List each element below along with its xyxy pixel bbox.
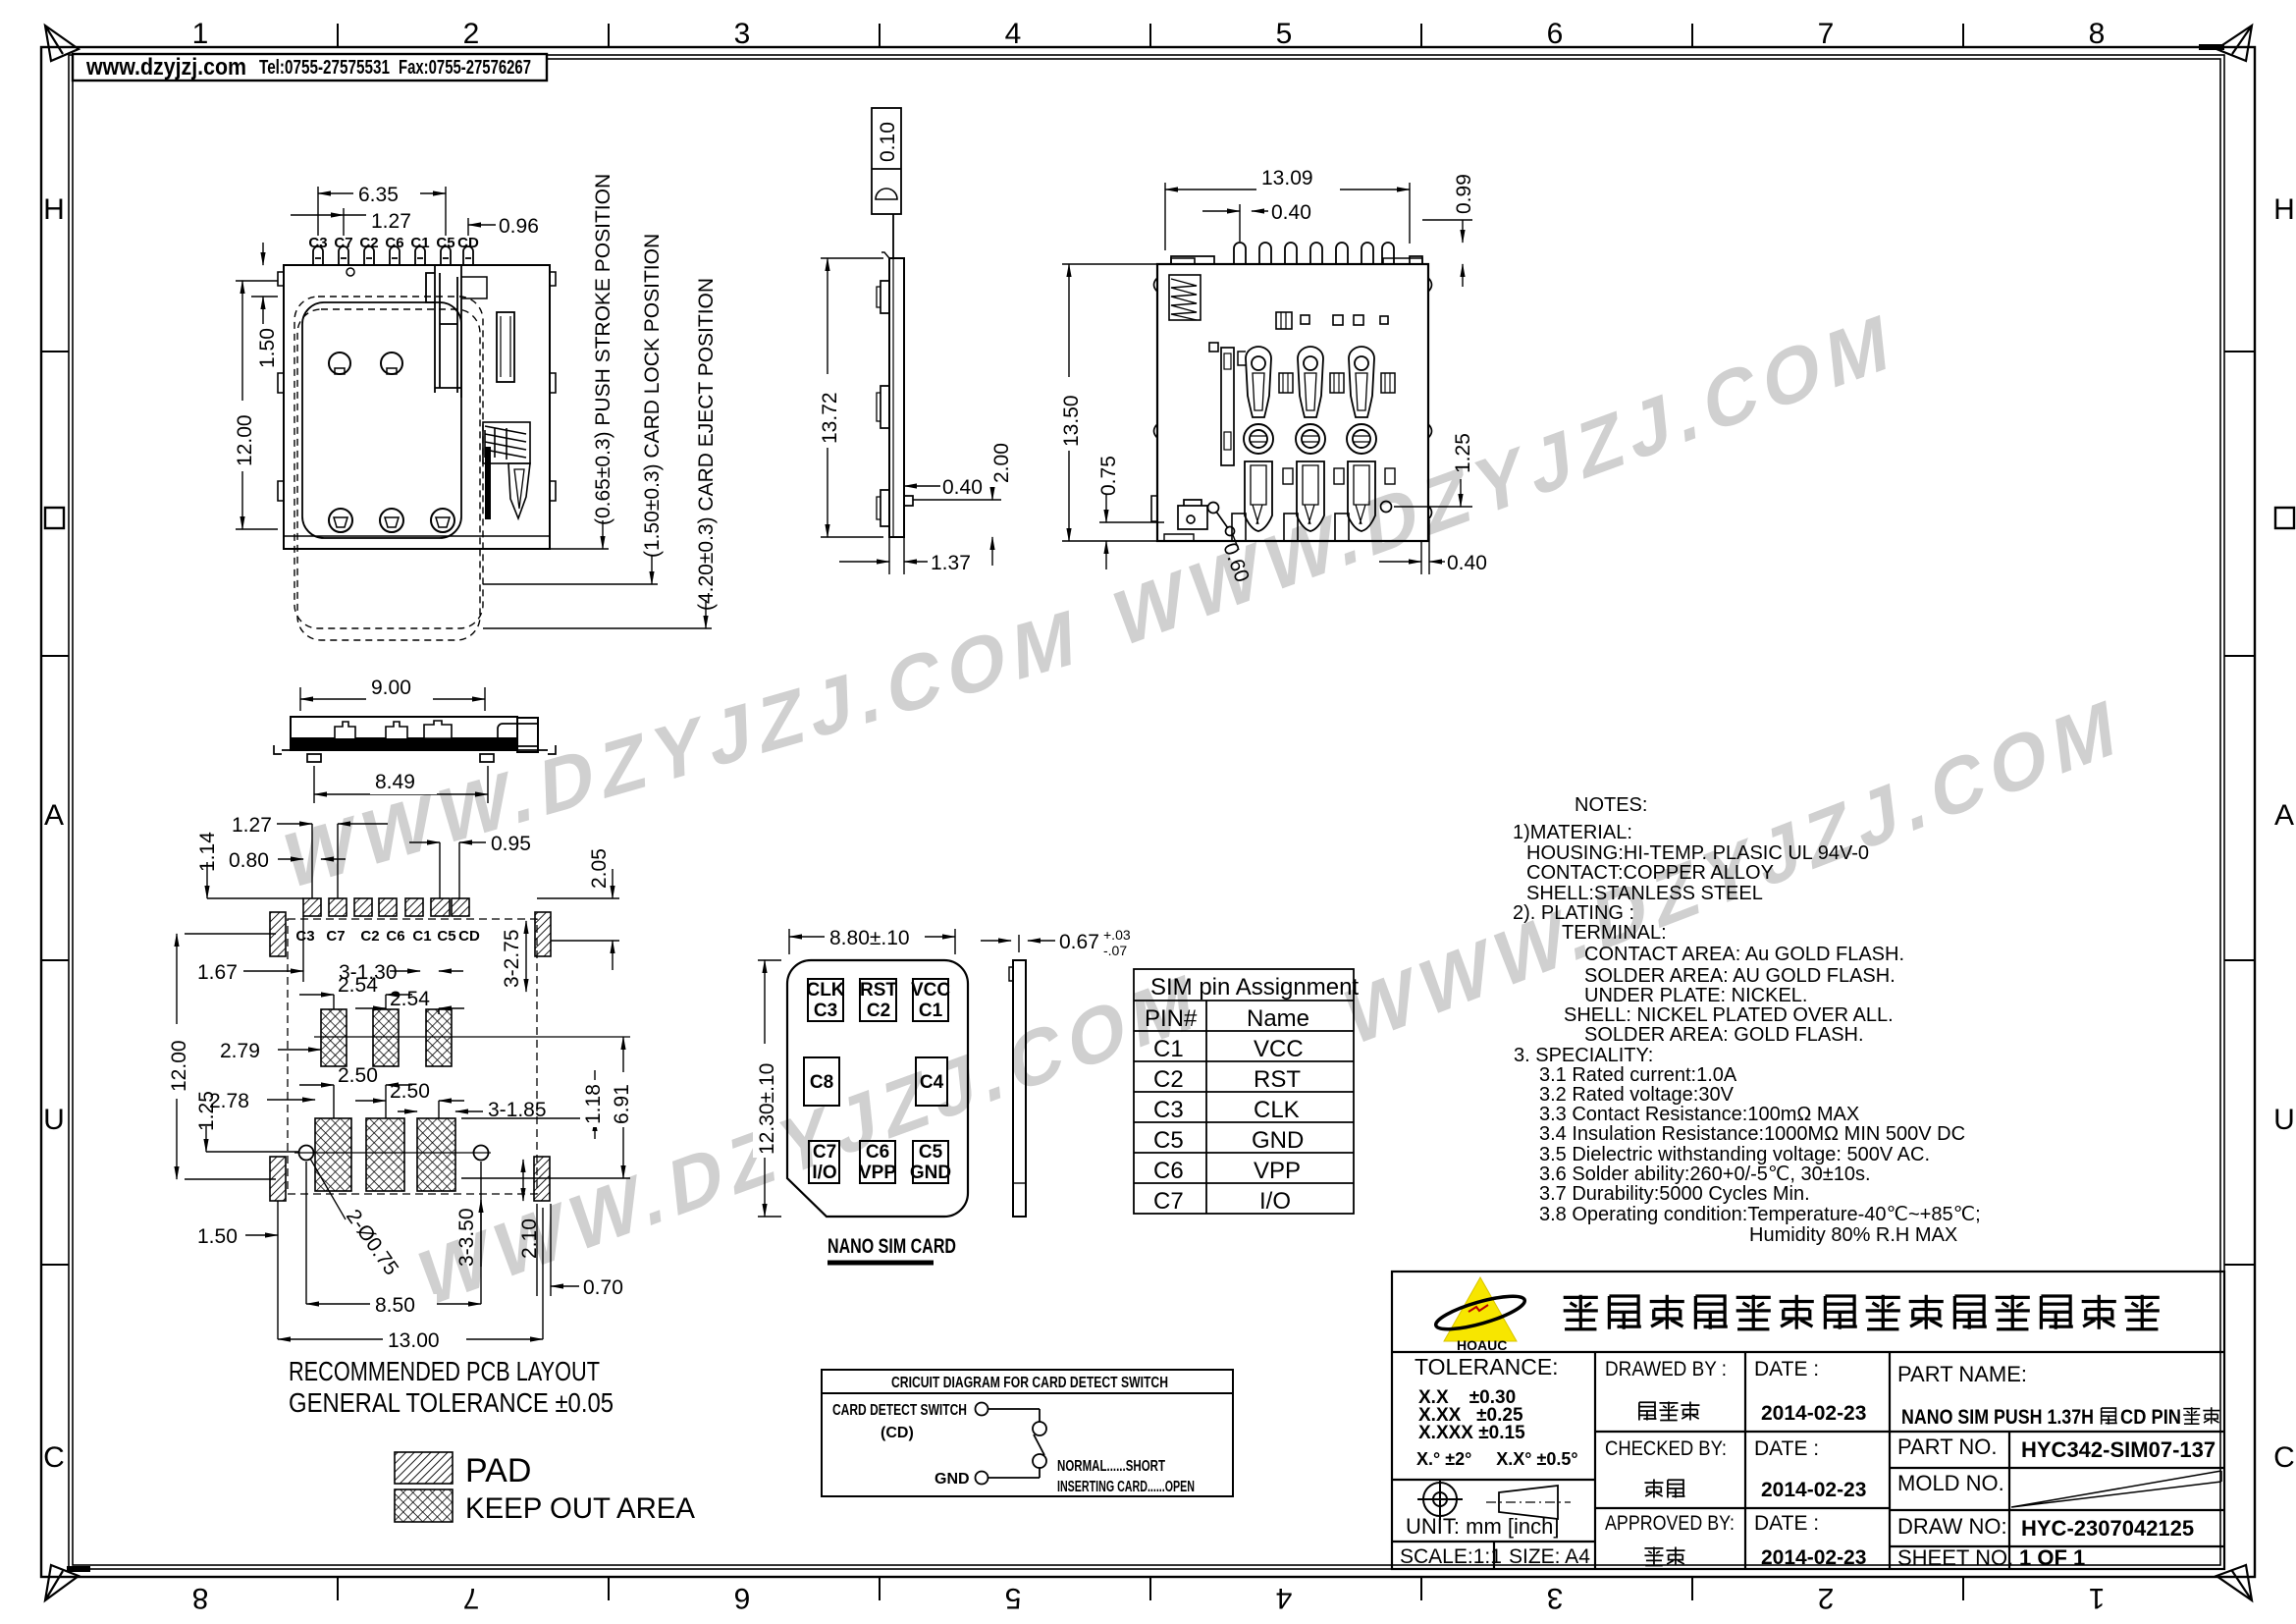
svg-text:GENERAL TOLERANCE ±0.05: GENERAL TOLERANCE ±0.05: [289, 1387, 614, 1418]
svg-text:2.79: 2.79: [220, 1040, 260, 1062]
svg-text:3.7 Durability:5000 Cycles: 3.7 Durability:5000 Cycles Min.: [1539, 1183, 1810, 1205]
svg-text:0.40: 0.40: [1271, 201, 1311, 224]
svg-text:CONTACT:COPPER ALLOY: CONTACT:COPPER ALLOY: [1526, 862, 1774, 884]
svg-text:H: H: [2273, 193, 2295, 226]
svg-text:9.00: 9.00: [371, 677, 411, 699]
svg-text:PART NO.: PART NO.: [1897, 1435, 1997, 1459]
svg-text:C6: C6: [386, 928, 404, 945]
svg-text:6.91: 6.91: [611, 1084, 633, 1124]
svg-text:NANO SIM CARD: NANO SIM CARD: [828, 1235, 956, 1258]
svg-text:HYC342-SIM07-137: HYC342-SIM07-137: [2021, 1437, 2216, 1462]
svg-text:HYC-2307042125: HYC-2307042125: [2021, 1516, 2194, 1541]
svg-text:C: C: [43, 1441, 65, 1474]
svg-text:INSERTING CARD......OPEN: INSERTING CARD......OPEN: [1057, 1479, 1195, 1495]
svg-text:CHECKED BY:: CHECKED BY:: [1605, 1437, 1727, 1460]
svg-text:1.67: 1.67: [197, 961, 238, 984]
svg-text:H: H: [43, 193, 65, 226]
svg-text:C5: C5: [1153, 1127, 1184, 1154]
svg-text:GND: GND: [910, 1163, 951, 1183]
svg-text:TERMINAL:: TERMINAL:: [1562, 922, 1667, 944]
svg-text:13.50: 13.50: [1060, 395, 1083, 447]
svg-text:RST: RST: [1254, 1066, 1301, 1093]
svg-text:I/O: I/O: [812, 1163, 836, 1183]
svg-text:2: 2: [1818, 1582, 1835, 1614]
svg-text:www.dzyjzj.com: www.dzyjzj.com: [85, 54, 246, 81]
svg-text:C5: C5: [919, 1142, 943, 1163]
svg-text:8: 8: [192, 1582, 209, 1614]
svg-text:CD: CD: [457, 235, 479, 251]
svg-text:RECOMMENDED PCB LAYOUT: RECOMMENDED PCB LAYOUT: [289, 1356, 600, 1386]
svg-text:DRAWED BY :: DRAWED BY :: [1605, 1358, 1727, 1380]
svg-text:8.80±.10: 8.80±.10: [829, 927, 910, 949]
svg-text:CONTACT AREA: Au GOLD FLAS: CONTACT AREA: Au GOLD FLASH.: [1584, 944, 1904, 965]
svg-text:Name: Name: [1247, 1005, 1309, 1032]
svg-text:5: 5: [1005, 1582, 1022, 1614]
svg-text:SIM pin Assignment: SIM pin Assignment: [1150, 974, 1359, 1001]
svg-text:(CD): (CD): [881, 1425, 914, 1441]
svg-text:2014-02-23: 2014-02-23: [1761, 1546, 1866, 1569]
svg-text:0.40: 0.40: [942, 476, 983, 499]
svg-text:U: U: [43, 1104, 65, 1136]
svg-text:GND: GND: [934, 1471, 970, 1488]
svg-text:C3: C3: [814, 1001, 837, 1021]
svg-text:C5: C5: [436, 235, 454, 251]
svg-text:0.70: 0.70: [583, 1276, 623, 1299]
svg-text:0.80: 0.80: [229, 849, 269, 872]
svg-text:SIZE: A4: SIZE: A4: [1509, 1545, 1590, 1568]
svg-text:SOLDER AREA: GOLD FLASH.: SOLDER AREA: GOLD FLASH.: [1584, 1024, 1864, 1046]
svg-text:12.00: 12.00: [168, 1040, 190, 1092]
svg-text:C2: C2: [360, 928, 379, 945]
svg-text:1.18: 1.18: [582, 1084, 605, 1124]
svg-text:NORMAL......SHORT: NORMAL......SHORT: [1057, 1458, 1165, 1475]
svg-text:SCALE:1:1: SCALE:1:1: [1400, 1545, 1502, 1568]
svg-text:2.78: 2.78: [209, 1090, 249, 1112]
svg-text:C1: C1: [919, 1001, 943, 1021]
svg-text:1: 1: [2089, 1582, 2106, 1614]
svg-text:2.54: 2.54: [338, 974, 378, 997]
svg-text:4: 4: [1005, 18, 1022, 50]
svg-text:X.° ±2° X.X° ±0.5°: X.° ±2° X.X° ±0.5°: [1416, 1449, 1578, 1469]
svg-text:UNIT: mm [inch]: UNIT: mm [inch]: [1406, 1514, 1559, 1539]
svg-text:0.95: 0.95: [491, 833, 531, 855]
svg-text:C2: C2: [359, 235, 378, 251]
svg-text:VPP: VPP: [859, 1163, 896, 1183]
svg-text:0.99: 0.99: [1453, 174, 1475, 214]
svg-text:2.05: 2.05: [588, 848, 611, 889]
svg-text:3-2.75: 3-2.75: [501, 929, 523, 988]
svg-text:12.30±.10: 12.30±.10: [756, 1063, 778, 1155]
svg-text:2.50: 2.50: [338, 1064, 378, 1087]
svg-text:APPROVED BY:: APPROVED BY:: [1605, 1512, 1735, 1535]
svg-text:+.03: +.03: [1103, 927, 1131, 943]
svg-text:SOLDER AREA: AU GOLD FLASH: SOLDER AREA: AU GOLD FLASH.: [1584, 965, 1896, 987]
svg-text:MOLD NO.: MOLD NO.: [1897, 1471, 2004, 1495]
svg-text:Humidity 80% R.H MAX: Humidity 80% R.H MAX: [1749, 1224, 1957, 1246]
svg-text:UNDER PLATE: NICKEL.: UNDER PLATE: NICKEL.: [1584, 985, 1807, 1006]
svg-text:C1: C1: [1153, 1036, 1184, 1062]
svg-text:2.54: 2.54: [390, 988, 430, 1010]
svg-text:8: 8: [2089, 18, 2106, 50]
svg-text:C2: C2: [1153, 1066, 1184, 1093]
svg-text:3.2 Rated voltage:30V: 3.2 Rated voltage:30V: [1539, 1084, 1735, 1106]
svg-text:12.00: 12.00: [234, 414, 256, 466]
svg-text:DATE :: DATE :: [1754, 1437, 1819, 1460]
svg-text:2014-02-23: 2014-02-23: [1761, 1402, 1866, 1425]
svg-text:VCC: VCC: [911, 980, 950, 1001]
svg-text:13.00: 13.00: [388, 1329, 440, 1352]
svg-text:13.09: 13.09: [1261, 167, 1313, 189]
svg-text:Fax:0755-27576267: Fax:0755-27576267: [399, 57, 531, 79]
svg-text:SHELL: NICKEL PLATED OVER: SHELL: NICKEL PLATED OVER ALL.: [1564, 1004, 1894, 1026]
svg-text:RST: RST: [860, 980, 897, 1001]
svg-text:7: 7: [1818, 18, 1835, 50]
svg-text:DRAW NO:: DRAW NO:: [1897, 1514, 2007, 1539]
svg-text:C1: C1: [410, 235, 429, 251]
svg-text:7: 7: [463, 1582, 480, 1614]
svg-text:6: 6: [1547, 18, 1564, 50]
svg-text:0.67: 0.67: [1059, 931, 1099, 953]
svg-text:1.37: 1.37: [931, 552, 971, 574]
svg-text:4: 4: [1276, 1582, 1293, 1614]
svg-text:1 OF 1: 1 OF 1: [2019, 1545, 2085, 1570]
svg-text:C2: C2: [867, 1001, 890, 1021]
svg-text:C7: C7: [326, 928, 345, 945]
svg-text:C7: C7: [813, 1142, 836, 1163]
svg-text:A: A: [44, 799, 64, 832]
svg-text:CD: CD: [458, 928, 480, 945]
svg-text:PIN#: PIN#: [1145, 1005, 1198, 1032]
svg-text:2). PLATING :: 2). PLATING :: [1513, 902, 1634, 924]
svg-text:I/O: I/O: [1259, 1188, 1291, 1215]
svg-text:0.40: 0.40: [1447, 552, 1487, 574]
svg-text:1.50: 1.50: [197, 1225, 238, 1248]
svg-text:HOAUC: HOAUC: [1457, 1337, 1507, 1353]
svg-text:KEEP OUT AREA: KEEP OUT AREA: [465, 1492, 695, 1525]
svg-text:U: U: [2273, 1104, 2295, 1136]
svg-text:3.8 Operating condition:Temp: 3.8 Operating condition:Temperature-40℃~…: [1539, 1204, 1981, 1225]
svg-text:SHEET NO.: SHEET NO.: [1897, 1545, 2013, 1570]
svg-text:PART NAME:: PART NAME:: [1897, 1362, 2027, 1386]
svg-text:-.07: -.07: [1103, 943, 1127, 958]
svg-text:3. SPECIALITY:: 3. SPECIALITY:: [1514, 1045, 1653, 1066]
svg-text:3.3 Contact Resistance:100mΩ: 3.3 Contact Resistance:100mΩ MAX: [1539, 1104, 1859, 1125]
svg-text:3: 3: [734, 18, 751, 50]
svg-text:1)MATERIAL:: 1)MATERIAL:: [1513, 822, 1632, 843]
svg-text:3.5 Dielectric withstanding: 3.5 Dielectric withstanding voltage: 500…: [1539, 1144, 1930, 1165]
svg-text:2.00: 2.00: [990, 443, 1013, 483]
svg-text:C4: C4: [920, 1072, 944, 1093]
svg-text:C3: C3: [295, 928, 314, 945]
svg-text:0.10: 0.10: [877, 122, 899, 162]
svg-text:C1: C1: [412, 928, 431, 945]
svg-text:6.35: 6.35: [358, 184, 399, 206]
svg-text:C6: C6: [866, 1142, 889, 1163]
svg-text:C3: C3: [1153, 1097, 1184, 1123]
svg-text:3-3.50: 3-3.50: [455, 1208, 478, 1267]
svg-text:2: 2: [463, 18, 480, 50]
svg-text:Tel:0755-27575531: Tel:0755-27575531: [259, 57, 390, 79]
svg-text:(4.20±0.3) CARD EJECT POSITION: (4.20±0.3) CARD EJECT POSITION: [695, 278, 718, 611]
svg-text:NOTES:: NOTES:: [1575, 794, 1647, 816]
svg-text:C6: C6: [1153, 1158, 1184, 1184]
svg-text:C: C: [2273, 1441, 2295, 1474]
svg-text:CARD DETECT SWITCH: CARD DETECT SWITCH: [832, 1402, 967, 1419]
svg-text:6: 6: [734, 1582, 751, 1614]
svg-text:0.75: 0.75: [1097, 456, 1120, 496]
svg-text:C7: C7: [334, 235, 352, 251]
svg-text:8.49: 8.49: [375, 771, 415, 793]
svg-text:C8: C8: [810, 1072, 833, 1093]
svg-text:(1.50±0.3) CARD LOCK POSITION: (1.50±0.3) CARD LOCK POSITION: [641, 234, 664, 558]
svg-text:TOLERANCE:: TOLERANCE:: [1415, 1354, 1559, 1380]
svg-text:1.14: 1.14: [196, 832, 219, 872]
svg-text:3.4 Insulation Resistance:10: 3.4 Insulation Resistance:1000MΩ MIN 500…: [1539, 1123, 1965, 1145]
svg-text:1.50: 1.50: [256, 328, 279, 368]
svg-text:1.27: 1.27: [371, 210, 411, 233]
svg-text:C3: C3: [308, 235, 327, 251]
svg-text:1: 1: [192, 18, 209, 50]
svg-text:CRICUIT DIAGRAM FOR CARD D: CRICUIT DIAGRAM FOR CARD DETECT SWITCH: [891, 1375, 1168, 1391]
svg-text:8.50: 8.50: [375, 1294, 415, 1317]
svg-text:CLK: CLK: [1254, 1097, 1300, 1123]
svg-text:DATE :: DATE :: [1754, 1512, 1819, 1535]
svg-text:VPP: VPP: [1254, 1158, 1301, 1184]
svg-text:HOUSING:HI-TEMP. PLASIC UL: HOUSING:HI-TEMP. PLASIC UL 94V-0: [1526, 842, 1869, 864]
svg-text:SHELL:STANLESS STEEL: SHELL:STANLESS STEEL: [1526, 883, 1763, 904]
svg-text:C6: C6: [385, 235, 403, 251]
svg-text:PAD: PAD: [465, 1452, 531, 1489]
svg-text:C5: C5: [437, 928, 455, 945]
svg-text:0.96: 0.96: [499, 215, 539, 238]
svg-text:13.72: 13.72: [819, 392, 841, 444]
svg-text:CLK: CLK: [806, 980, 844, 1001]
svg-text:VCC: VCC: [1254, 1036, 1304, 1062]
svg-text:3: 3: [1547, 1582, 1564, 1614]
svg-text:GND: GND: [1252, 1127, 1304, 1154]
svg-text:X.XXX ±0.15: X.XXX ±0.15: [1418, 1423, 1525, 1443]
svg-text:DATE :: DATE :: [1754, 1358, 1819, 1380]
svg-text:(0.65±0.3) PUSH STROKE POSITIO: (0.65±0.3) PUSH STROKE POSITION: [592, 174, 614, 525]
svg-text:3.6 Solder ability:260+0/-5℃: 3.6 Solder ability:260+0/-5℃, 30±10s.: [1539, 1164, 1871, 1185]
svg-text:2.50: 2.50: [390, 1080, 430, 1103]
svg-text:5: 5: [1276, 18, 1293, 50]
svg-text:A: A: [2274, 799, 2294, 832]
svg-text:3.1 Rated current:1.0A: 3.1 Rated current:1.0A: [1539, 1064, 1737, 1086]
svg-text:1.27: 1.27: [232, 814, 272, 837]
svg-text:C7: C7: [1153, 1188, 1184, 1215]
svg-text:NANO SIM PUSH 1.37H: NANO SIM PUSH 1.37H: [1901, 1406, 2094, 1429]
svg-text:CD PIN: CD PIN: [2120, 1406, 2181, 1429]
svg-text:1.25: 1.25: [1452, 433, 1474, 473]
svg-text:2014-02-23: 2014-02-23: [1761, 1479, 1866, 1501]
